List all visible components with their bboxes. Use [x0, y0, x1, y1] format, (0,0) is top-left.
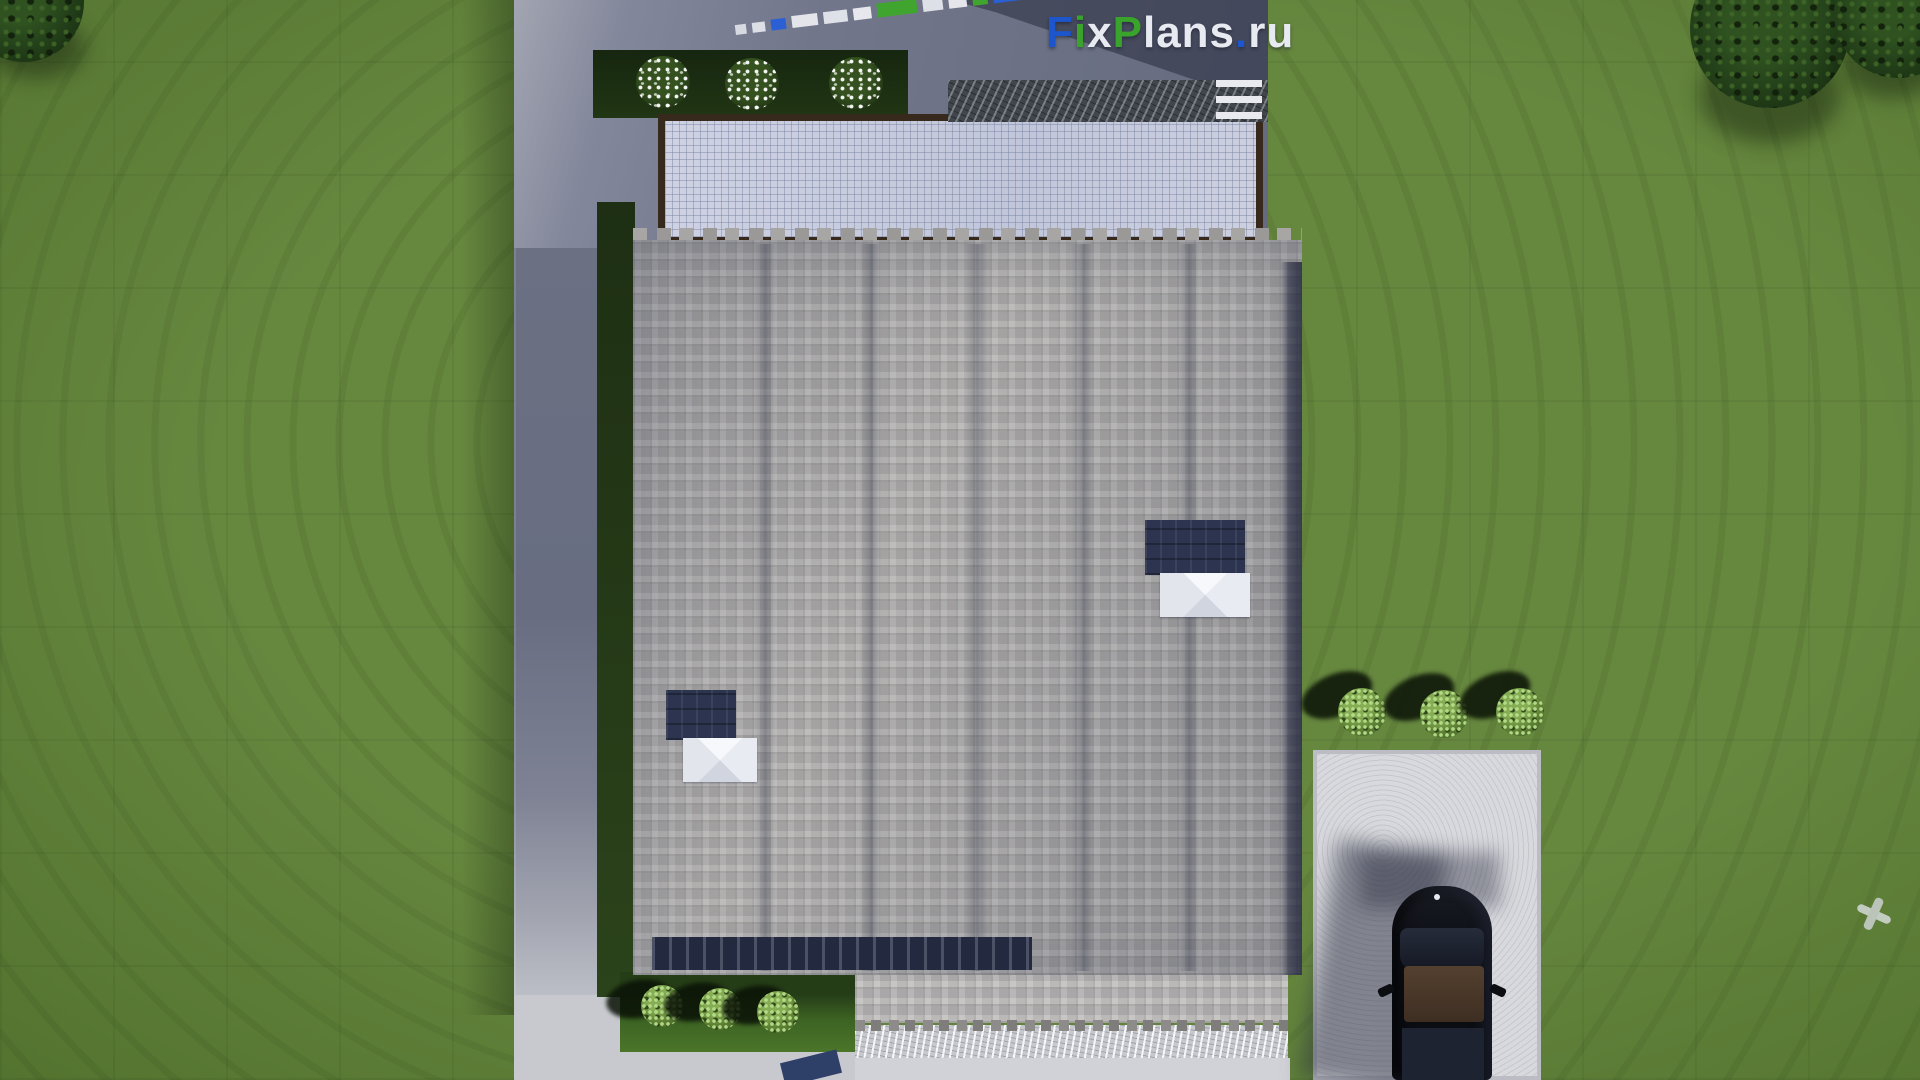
logo-letter: ru: [1248, 8, 1294, 57]
skylight-shadow-left: [666, 690, 736, 740]
fixplans-logo: FixPlans.ru: [1046, 8, 1294, 58]
watermark-segment: [735, 24, 747, 35]
bush: [757, 991, 799, 1033]
logo-letter: .: [1235, 8, 1248, 57]
logo-letter: P: [1113, 8, 1143, 57]
skylight-left: [683, 738, 757, 782]
car-sunroof: [1404, 966, 1484, 1022]
site-plan-render: FixPlans.ru: [0, 0, 1920, 1080]
glass-canopy: [658, 114, 1263, 244]
terrace-step: [1216, 112, 1262, 119]
roof-seam: [1071, 244, 1093, 971]
watermark-segment: [853, 6, 872, 20]
roof-seam: [859, 244, 881, 971]
flower-bush: [636, 56, 690, 108]
logo-letter: lans: [1143, 8, 1235, 57]
logo-letter: i: [1074, 8, 1087, 57]
bush: [1496, 688, 1544, 736]
lawn-edge-shadow: [462, 0, 516, 1015]
concrete-apron-bottom-center: [855, 1058, 1290, 1080]
logo-letter: F: [1046, 8, 1074, 57]
concrete-path: [514, 248, 600, 1008]
bush: [1338, 688, 1386, 736]
car-windshield: [1400, 928, 1484, 970]
car-rear-window: [1402, 1028, 1484, 1080]
logo-letter: x: [1087, 8, 1112, 57]
watermark-segment: [770, 18, 786, 31]
porch-roof-edge: [855, 1020, 1288, 1031]
car-antenna: [1434, 894, 1440, 900]
watermark-segment: [752, 21, 766, 33]
roof-right-edge-shadow: [1280, 262, 1302, 975]
terrace-step: [1216, 96, 1262, 103]
roof-seam: [753, 244, 775, 971]
flower-bush: [725, 58, 779, 110]
shaded-grass-strip: [597, 202, 635, 997]
skylight-right: [1160, 573, 1250, 617]
terrace-step: [1216, 80, 1262, 87]
roof-eave-shadow: [652, 937, 1032, 970]
flower-bush: [829, 57, 883, 109]
skylight-shadow-right: [1145, 520, 1245, 575]
roof-seam: [965, 244, 987, 971]
